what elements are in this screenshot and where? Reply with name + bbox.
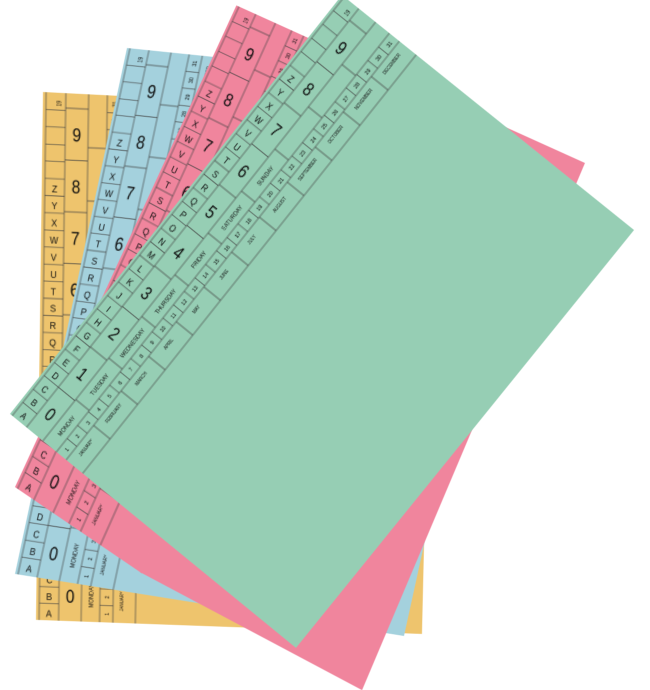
svg-text:19: 19 (137, 57, 145, 63)
svg-text:1: 1 (105, 613, 111, 616)
svg-text:29: 29 (185, 94, 193, 101)
svg-text:Q: Q (49, 337, 56, 349)
svg-text:2: 2 (105, 596, 111, 599)
svg-text:W: W (50, 234, 59, 246)
svg-text:R: R (50, 320, 57, 332)
svg-text:7: 7 (71, 227, 80, 249)
svg-text:30: 30 (188, 77, 196, 83)
svg-text:MONDAY: MONDAY (89, 584, 96, 608)
svg-text:X: X (51, 217, 58, 229)
svg-text:9: 9 (72, 124, 81, 146)
svg-text:Z: Z (52, 183, 58, 195)
svg-text:U: U (50, 268, 57, 280)
svg-text:JANUARY: JANUARY (119, 591, 126, 612)
svg-text:19: 19 (57, 100, 64, 107)
svg-text:8: 8 (71, 176, 80, 198)
svg-text:T: T (51, 285, 57, 297)
svg-text:Y: Y (51, 200, 58, 212)
svg-text:31: 31 (192, 60, 200, 66)
svg-text:S: S (50, 303, 56, 315)
svg-text:A: A (46, 607, 53, 619)
svg-text:0: 0 (66, 586, 75, 607)
svg-text:B: B (46, 591, 52, 602)
svg-text:V: V (51, 251, 58, 263)
